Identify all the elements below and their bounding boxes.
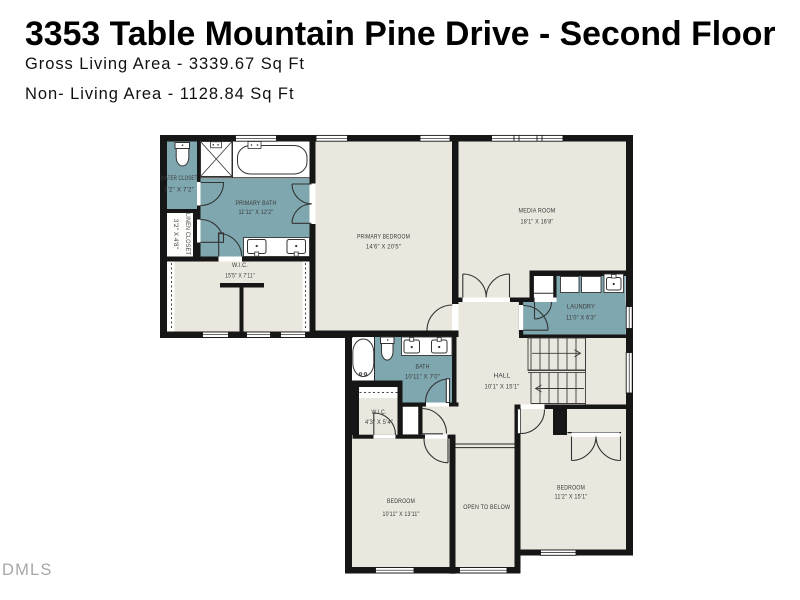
svg-text:PRIMARY BATH: PRIMARY BATH	[236, 200, 277, 207]
svg-text:10'11" X 7'0": 10'11" X 7'0"	[405, 374, 440, 381]
svg-text:4'3" X 5'4": 4'3" X 5'4"	[365, 419, 393, 426]
svg-text:MEDIA ROOM: MEDIA ROOM	[519, 207, 556, 214]
svg-text:3'2" X 7'2": 3'2" X 7'2"	[164, 186, 194, 193]
svg-text:18'1" X 16'8": 18'1" X 16'8"	[521, 219, 554, 226]
svg-text:14'6" X 20'5": 14'6" X 20'5"	[366, 244, 401, 251]
svg-text:10'11" X 13'11": 10'11" X 13'11"	[383, 511, 420, 518]
svg-text:11'11" X 12'2": 11'11" X 12'2"	[239, 209, 274, 216]
svg-text:BEDROOM: BEDROOM	[387, 498, 415, 505]
svg-text:15'5" X 7'11": 15'5" X 7'11"	[225, 272, 255, 279]
svg-text:10'1" X 15'1": 10'1" X 15'1"	[485, 383, 520, 390]
svg-text:W.I.C.: W.I.C.	[232, 262, 248, 269]
svg-text:WATER CLOSET: WATER CLOSET	[161, 175, 198, 182]
svg-text:BEDROOM: BEDROOM	[557, 484, 585, 491]
svg-text:11'2" X 15'1": 11'2" X 15'1"	[555, 493, 588, 500]
svg-text:BATH: BATH	[416, 363, 430, 370]
svg-text:HALL: HALL	[494, 373, 511, 380]
svg-text:W.I.C.: W.I.C.	[372, 409, 387, 416]
svg-text:OPEN TO BELOW: OPEN TO BELOW	[463, 504, 510, 511]
svg-text:PRIMARY BEDROOM: PRIMARY BEDROOM	[357, 233, 410, 240]
svg-text:11'0" X 6'3": 11'0" X 6'3"	[566, 314, 596, 321]
svg-text:3'2" X 4'8": 3'2" X 4'8"	[172, 219, 179, 249]
svg-text:LINEN CLOSET: LINEN CLOSET	[184, 213, 191, 255]
svg-text:LAUNDRY: LAUNDRY	[567, 303, 595, 310]
